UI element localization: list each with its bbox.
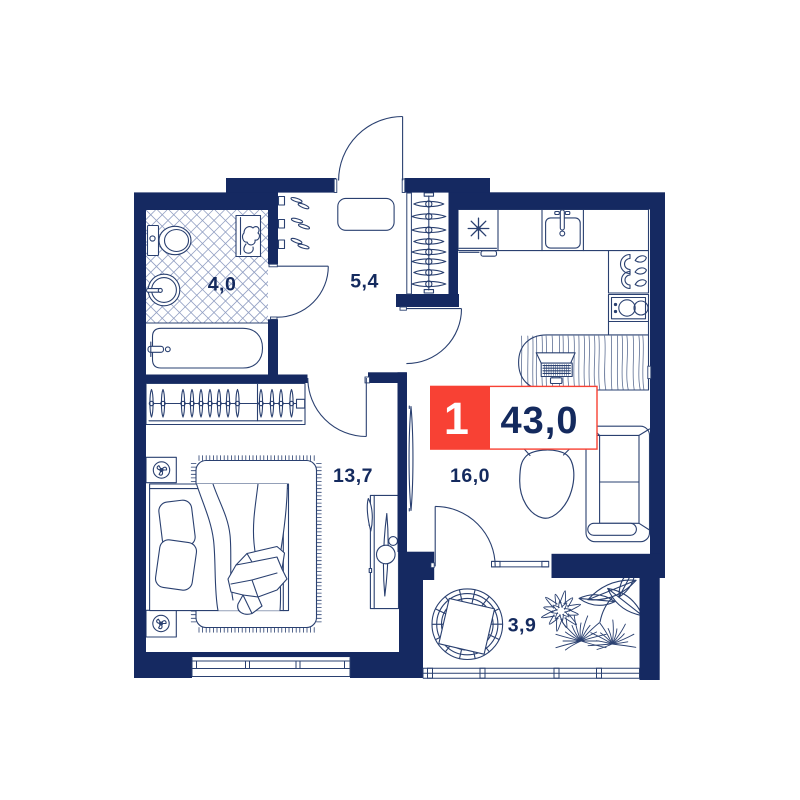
svg-text:13,7: 13,7	[333, 465, 373, 487]
svg-text:1: 1	[444, 393, 469, 444]
svg-text:5,4: 5,4	[350, 270, 379, 292]
svg-text:4,0: 4,0	[208, 274, 237, 296]
svg-text:16,0: 16,0	[450, 465, 490, 487]
svg-text:3,9: 3,9	[508, 615, 537, 637]
svg-text:43,0: 43,0	[501, 400, 579, 442]
